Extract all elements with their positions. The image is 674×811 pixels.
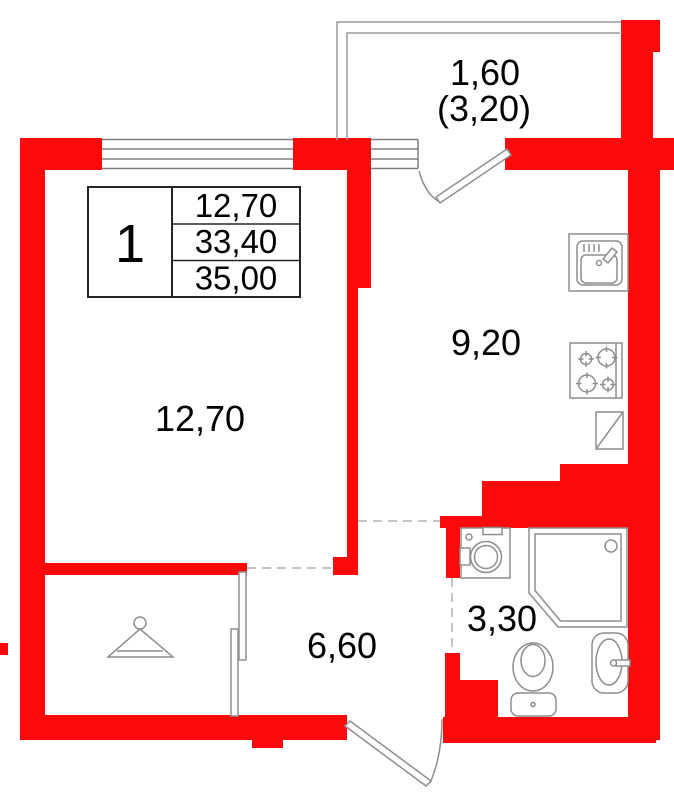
balcony-area-total-label: (3,20)	[437, 88, 531, 129]
kitchen-sink-icon	[569, 234, 628, 291]
floor-plan-canvas: 1 12,70 33,40 35,00 1,60 (3,20) 9,20 12,…	[0, 0, 674, 811]
fridge-icon	[596, 412, 623, 449]
wall-segment	[0, 643, 8, 655]
wall-segment	[45, 138, 102, 170]
bathroom-area-label: 3,30	[467, 598, 537, 639]
wall-segment	[445, 653, 460, 717]
door-leaf	[345, 721, 431, 786]
hanger-icon	[108, 617, 173, 657]
door-swing-arc	[419, 171, 438, 201]
stove-icon	[570, 343, 622, 398]
door-leaf	[436, 149, 511, 203]
wall-segment	[252, 740, 283, 748]
wall-segment	[460, 680, 498, 717]
window-living	[102, 140, 293, 169]
entrance-door	[345, 719, 442, 786]
shower-icon	[529, 528, 627, 627]
wall-segment	[443, 717, 656, 743]
wall-segment	[293, 138, 371, 170]
wall-segment	[20, 715, 347, 740]
hall-area-label: 6,60	[307, 625, 377, 666]
wall-segment	[628, 170, 660, 740]
closet-partition	[231, 572, 246, 716]
wall-segment	[560, 464, 630, 482]
wall-segment	[621, 20, 660, 52]
wall-segment	[505, 138, 674, 170]
living-area-label: 12,70	[155, 398, 245, 439]
wall-segment	[440, 516, 630, 528]
toilet-icon	[511, 643, 556, 716]
floor-plan: 1 12,70 33,40 35,00 1,60 (3,20) 9,20 12,…	[0, 0, 674, 811]
bathroom-sink-icon	[592, 633, 630, 693]
wall-segment	[347, 170, 371, 288]
unit-number: 1	[115, 214, 145, 274]
info-table: 1 12,70 33,40 35,00	[88, 187, 300, 297]
window-kitchen-balcony	[371, 140, 418, 169]
wall-segment	[20, 138, 45, 740]
table-value-living: 12,70	[195, 187, 278, 224]
balcony-door	[419, 149, 511, 203]
balcony-area-label: 1,60	[450, 52, 520, 93]
kitchen-area-label: 9,20	[451, 322, 521, 363]
washing-machine-icon	[460, 528, 510, 579]
wall-segment	[482, 481, 630, 516]
wall-segment	[446, 528, 460, 578]
wall-segment	[621, 52, 653, 138]
table-value-total: 35,00	[195, 260, 278, 297]
wall-segment	[333, 557, 358, 575]
table-value-area: 33,40	[195, 223, 278, 260]
wall-segment	[347, 288, 358, 575]
wall-segment	[45, 563, 247, 575]
door-swing-arc	[430, 719, 442, 783]
